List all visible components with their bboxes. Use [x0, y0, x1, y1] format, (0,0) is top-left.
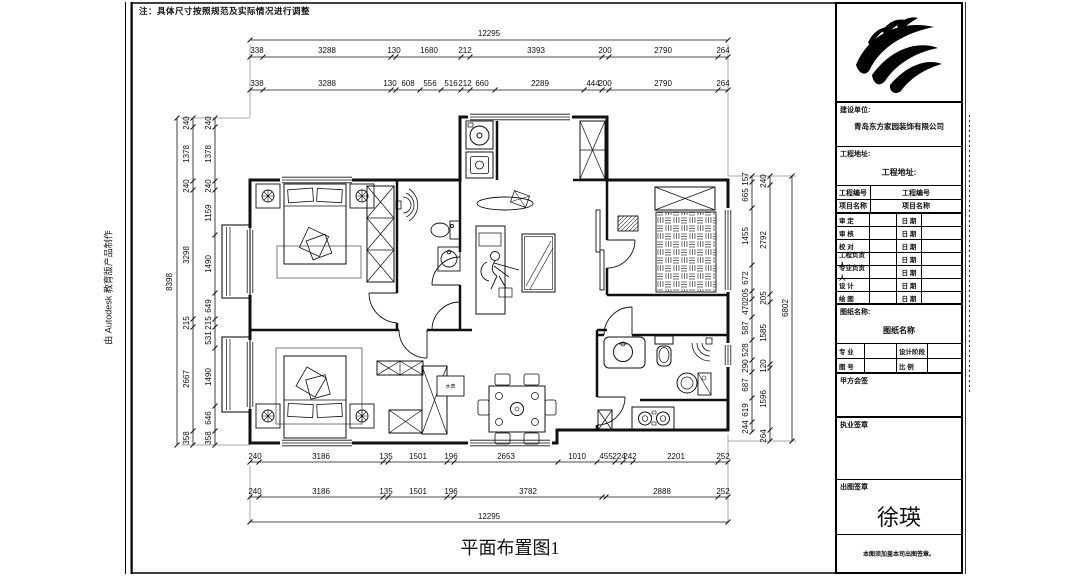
dim-label: 135 [379, 452, 393, 461]
date-label: 日 期 [897, 266, 922, 278]
dim-label: 264 [716, 46, 730, 55]
row-label: 审 定 [837, 214, 870, 226]
dim-label: 252 [716, 452, 730, 461]
cabinet-symbol [655, 187, 715, 210]
dim-label: 8398 [165, 273, 174, 291]
row-label: 专业负责人 [837, 266, 870, 278]
dim-label: 196 [444, 452, 458, 461]
claw-feather-logo-icon [840, 7, 958, 99]
project-no-row: 工程编号 工程编号 [837, 186, 961, 200]
drawing-name-cell: 图纸名称: 图纸名称 [837, 305, 961, 344]
speaker-symbol [396, 189, 418, 221]
dim-label: 240 [759, 174, 768, 188]
row-value-blank [870, 240, 897, 252]
title-block: 建设单位: 青岛东方家园装饰有限公司 工程地址: 工程地址: 工程编号 工程编号… [835, 2, 963, 574]
dim-label: 215 [182, 316, 191, 330]
dim-label: 242 [623, 452, 637, 461]
project-name-value: 项目名称 [871, 201, 961, 211]
dim-label: 665 [741, 188, 750, 202]
drawing-name-value: 图纸名称 [840, 325, 958, 336]
mirror-panel-symbol [522, 234, 555, 292]
washbasin-symbol [604, 337, 645, 368]
dim-label: 205 [741, 288, 750, 302]
designer-row: 设 计 日 期 [837, 279, 961, 292]
specialty-value-blank [865, 344, 897, 358]
dim-label: 649 [204, 299, 213, 313]
floor-tile-area [656, 212, 716, 292]
wardrobe-symbol [377, 361, 447, 434]
project-name-label: 项目名称 [837, 200, 871, 212]
dim-label: 1159 [204, 204, 213, 222]
water-meter-box: 水表 [437, 376, 464, 396]
practice-seal-label: 执业签章 [840, 420, 958, 430]
dim-label: 212 [458, 46, 472, 55]
dim-label: 455 [599, 452, 613, 461]
toilet-symbol [431, 221, 460, 239]
dim-label: 212 [458, 79, 472, 88]
date-value-blank [922, 214, 961, 226]
drawing-no-value-blank [865, 359, 897, 372]
dim-label: 1680 [420, 46, 438, 55]
drafter-row: 绘 图 日 期 [837, 292, 961, 305]
drawing-no-label: 图 号 [837, 359, 865, 372]
design-stage-label: 设计阶段 [897, 344, 928, 358]
date-value-blank [922, 279, 961, 291]
dim-label: 157 [741, 172, 750, 186]
dim-label: 2653 [497, 452, 515, 461]
dim-label: 240 [204, 179, 213, 193]
washing-machine-symbol [677, 373, 711, 395]
dim-label: 2289 [531, 79, 549, 88]
dim-label: 200 [598, 79, 612, 88]
date-value-blank [922, 227, 961, 239]
project-address-value: 工程地址: [840, 167, 958, 178]
dim-label: 2888 [653, 487, 671, 496]
project-name-row: 项目名称 项目名称 [837, 200, 961, 214]
oven-symbol [466, 152, 493, 178]
date-value-blank [922, 253, 961, 265]
date-label: 日 期 [897, 279, 922, 291]
date-value-blank [922, 292, 961, 303]
washing-machine-symbol [466, 121, 493, 149]
issue-seal-cell: 出图签章 徐瑛 [837, 480, 961, 535]
construction-unit-label: 建设单位: [840, 105, 958, 115]
gas-stove-symbol [632, 407, 674, 430]
toilet-symbol [655, 336, 673, 366]
row-label: 设 计 [837, 279, 870, 291]
specialty-lead-row: 专业负责人 日 期 [837, 266, 961, 279]
oval-table-symbol [477, 191, 533, 210]
dim-label: 120 [759, 359, 768, 373]
date-label: 日 期 [897, 240, 922, 252]
dining-table-symbol [478, 374, 556, 444]
specialty-row: 专 业 设计阶段 [837, 344, 961, 359]
dim-label: 130 [387, 46, 401, 55]
dim-label: 1596 [759, 390, 768, 408]
water-meter-label: 水表 [445, 383, 455, 390]
date-label: 日 期 [897, 227, 922, 239]
date-label: 日 期 [897, 292, 922, 303]
dim-label: 587 [741, 321, 750, 335]
dim-label: 358 [182, 431, 191, 445]
dim-label: 215 [204, 316, 213, 330]
dim-label: 3393 [527, 46, 545, 55]
dim-label: 3186 [312, 452, 330, 461]
bay-window [222, 225, 250, 412]
dim-label: 252 [716, 487, 730, 496]
date-label: 日 期 [897, 214, 922, 226]
construction-unit-value: 青岛东方家园装饰有限公司 [840, 121, 958, 132]
dim-label: 338 [250, 46, 264, 55]
dim-label: 660 [475, 79, 489, 88]
dim-label: 3186 [312, 487, 330, 496]
drawing-title: 平面布置图1 [420, 534, 600, 560]
client-sign-label: 甲方会签 [840, 376, 958, 386]
floor-drain-symbol [618, 216, 638, 231]
dim-label: 3782 [519, 487, 537, 496]
dim-label: 196 [444, 487, 458, 496]
sheet-note: 注：具体尺寸按照规范及实际情况进行调整 [139, 5, 310, 17]
practice-seal-cell: 执业签章 [837, 418, 961, 480]
dim-label: 244 [741, 420, 750, 434]
dim-label: 1378 [204, 145, 213, 163]
dim-label: 358 [204, 431, 213, 445]
dim-label: 240 [204, 116, 213, 130]
row-value-blank [870, 279, 897, 291]
row-value-blank [870, 292, 897, 303]
dim-label: 531 [204, 331, 213, 345]
duct-column-symbol [580, 121, 605, 179]
dim-label: 338 [250, 79, 264, 88]
dim-label: 1455 [741, 227, 750, 245]
dim-label: 240 [248, 487, 262, 496]
dim-label: 608 [401, 79, 415, 88]
dim-label: 2792 [759, 231, 768, 249]
scale-value-blank [928, 359, 961, 372]
person-at-desk-symbol [481, 252, 519, 290]
dim-label: 240 [182, 116, 191, 130]
dim-label: 1501 [409, 487, 427, 496]
dim-label: 240 [248, 452, 262, 461]
row-value-blank [870, 227, 897, 239]
dim-label: 2201 [667, 452, 685, 461]
row-value-blank [870, 214, 897, 226]
dim-label: 646 [204, 411, 213, 425]
speaker-symbol [692, 338, 712, 361]
dim-label: 1490 [204, 255, 213, 273]
dim-label: 3298 [182, 246, 191, 264]
drawing-name-label: 图纸名称: [840, 307, 958, 317]
approver-row: 审 定 日 期 [837, 214, 961, 227]
date-value-blank [922, 240, 961, 252]
dim-label: 687 [741, 378, 750, 392]
dim-label: 556 [423, 79, 437, 88]
double-bed-symbol [284, 356, 346, 438]
sliding-door-symbol [596, 210, 604, 290]
dim-label: 264 [716, 79, 730, 88]
dim-label: 516 [444, 79, 458, 88]
construction-unit-cell: 建设单位: 青岛东方家园装饰有限公司 [837, 103, 961, 147]
row-label: 绘 图 [837, 292, 870, 303]
dim-label: 672 [741, 271, 750, 285]
dim-label: 3288 [318, 79, 336, 88]
reviewer-row: 审 核 日 期 [837, 227, 961, 240]
drawing-no-row: 图 号 比 例 [837, 359, 961, 374]
nightstand-lamp-icon [256, 404, 374, 428]
issue-seal-label: 出图签章 [840, 482, 958, 492]
autodesk-strip: 由 Autodesk 教育版产品制作 [102, 200, 115, 376]
dim-label: 1501 [409, 452, 427, 461]
row-label: 审 核 [837, 227, 870, 239]
dim-label: 1378 [182, 145, 191, 163]
date-label: 日 期 [897, 253, 922, 265]
double-bed-symbol [284, 184, 346, 264]
dim-label: 290 [741, 359, 750, 373]
dim-label: 2790 [654, 79, 672, 88]
dim-label: 12295 [478, 512, 501, 521]
project-no-label: 工程编号 [837, 186, 871, 199]
title-block-note: 本图须加盖本司出图签章。 [837, 535, 961, 572]
nightstand-lamp-icon [256, 184, 374, 208]
dim-label: 12295 [478, 29, 501, 38]
cad-sheet: 水表 12295 338 3288 130 [0, 0, 1074, 576]
cabinet-symbol [598, 410, 612, 430]
date-value-blank [922, 266, 961, 278]
dim-label: 240 [182, 179, 191, 193]
dim-label: 200 [598, 46, 612, 55]
dim-label: 528 [741, 343, 750, 357]
row-value-blank [870, 253, 897, 265]
project-address-label: 工程地址: [840, 149, 958, 159]
dim-label: 619 [741, 403, 750, 417]
specialty-label: 专 业 [837, 344, 865, 358]
dim-label: 1010 [568, 452, 586, 461]
dim-label: 470 [741, 301, 750, 315]
dim-label: 2790 [654, 46, 672, 55]
signature: 徐瑛 [840, 500, 958, 532]
dim-label: 264 [759, 429, 768, 443]
scale-label: 比 例 [897, 359, 928, 372]
desk-symbol [476, 226, 512, 314]
dim-label: 2667 [182, 370, 191, 388]
dim-label: 130 [383, 79, 397, 88]
project-address-cell: 工程地址: 工程地址: [837, 147, 961, 186]
design-stage-value-blank [928, 344, 961, 358]
wardrobe-symbol [367, 186, 394, 282]
dim-label: 6802 [781, 299, 790, 317]
company-logo [837, 4, 961, 103]
dim-label: 1585 [759, 324, 768, 342]
row-value-blank [870, 266, 897, 278]
dim-label: 205 [759, 291, 768, 305]
project-no-value: 工程编号 [871, 188, 961, 198]
client-sign-cell: 甲方会签 [837, 374, 961, 418]
dim-label: 135 [379, 487, 393, 496]
dim-label: 3288 [318, 46, 336, 55]
dim-label: 1490 [204, 368, 213, 386]
